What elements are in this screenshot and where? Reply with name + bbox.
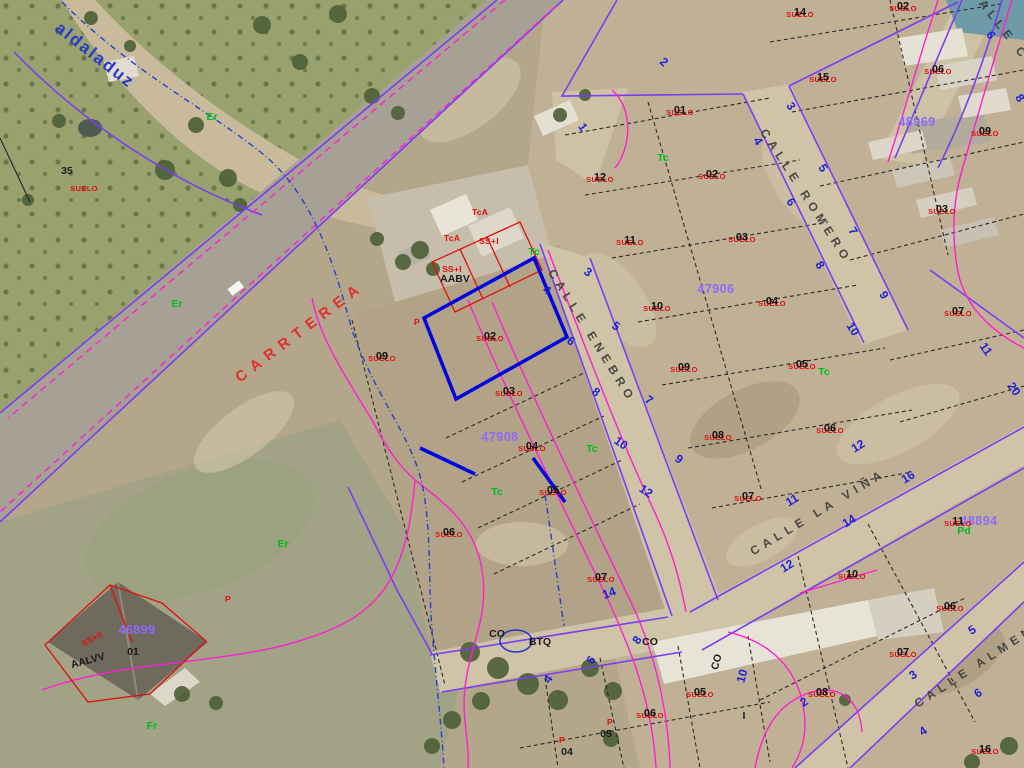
parcel-suelo-label: SUELO16 xyxy=(971,741,999,759)
parcel-suelo-label: SUELO07 xyxy=(889,644,917,662)
parcel-number: 05 xyxy=(694,686,706,698)
parcel-suelo-label: SUELO12 xyxy=(586,169,614,187)
building-annotation: P xyxy=(225,595,231,604)
parcel-number: 10 xyxy=(651,300,663,312)
parcel-suelo-label: SUELO05 xyxy=(539,482,567,500)
parcel-suelo-label: SUELO06 xyxy=(636,705,664,723)
building-annotation: TcA xyxy=(444,234,460,243)
text-annotation: CO xyxy=(642,637,658,648)
parcel-number: 05 xyxy=(547,484,559,496)
parcel-number: 07 xyxy=(897,646,909,658)
land-use-code-label: Tc xyxy=(528,247,539,258)
building-annotation: P xyxy=(607,718,613,727)
parcel-suelo-label: SUELO04 xyxy=(758,293,786,311)
house-number-label: 5 xyxy=(966,623,978,637)
parcel-suelo-label: SUELO06 xyxy=(936,598,964,616)
house-number-label: 8 xyxy=(813,259,827,271)
suelo-text: SUELO xyxy=(70,184,98,193)
parcel-number: 06 xyxy=(644,707,656,719)
parcel-number: 16 xyxy=(979,743,991,755)
house-number-label: 9 xyxy=(877,289,891,301)
block-number-label: 47908 xyxy=(481,431,518,444)
text-annotation: 04 xyxy=(561,747,573,758)
parcel-suelo-label: SUELO08 xyxy=(808,684,836,702)
parcel-suelo-label: SUELO11 xyxy=(616,232,644,250)
text-annotation: CO xyxy=(710,653,724,671)
parcel-number: 15 xyxy=(817,71,829,83)
street-name-label: CALLE ROMERO xyxy=(758,127,854,265)
text-annotation: CO xyxy=(489,629,505,640)
parcel-number: 04 xyxy=(766,295,778,307)
house-number-label: 20 xyxy=(1005,380,1022,398)
building-annotation: P xyxy=(414,318,420,327)
map-canvas[interactable]: CARRTEREACALLE ENEBROCALLE ROMEROCALLE L… xyxy=(0,0,1024,768)
street-name-label: CALLE LA VIÑA xyxy=(748,467,888,558)
text-annotation: BTQ xyxy=(529,637,551,648)
parcel-number: 06 xyxy=(824,422,836,434)
parcel-suelo-label: SUELO02 xyxy=(476,328,504,346)
parcel-number: 09 xyxy=(979,125,991,137)
parcel-suelo-label: SUELO03 xyxy=(495,383,523,401)
parcel-suelo-label: SUELO08 xyxy=(704,427,732,445)
house-number-label: 4 xyxy=(541,283,553,297)
street-name-label: aldaladuz xyxy=(52,19,138,91)
parcel-suelo-label: SUELO07 xyxy=(587,569,615,587)
parcel-suelo-label: SUELO03 xyxy=(928,201,956,219)
parcel-suelo-label: SUELO06 xyxy=(816,420,844,438)
house-number-label: 16 xyxy=(899,468,917,485)
street-name-label: CALLE ALMENDRO xyxy=(912,600,1024,709)
parcel-number: 05 xyxy=(796,358,808,370)
parcel-number: 07 xyxy=(742,490,754,502)
house-number-label: 6 xyxy=(565,334,577,348)
house-number-label: 14 xyxy=(601,585,618,601)
parcel-suelo-label: SUELO10 xyxy=(643,298,671,316)
house-number-label: 5 xyxy=(610,319,622,333)
house-number-label: 3 xyxy=(582,265,594,279)
parcel-suelo-label: SUELO05 xyxy=(788,356,816,374)
text-annotation: I xyxy=(743,711,746,722)
house-number-label: 2 xyxy=(658,55,671,68)
parcel-suelo-label: SUELO02 xyxy=(889,0,917,16)
land-use-code-label: Tc xyxy=(586,444,597,455)
parcel-suelo-label: SUELO04 xyxy=(518,438,546,456)
parcel-suelo-label: SUELO09 xyxy=(670,359,698,377)
house-number-label: 8 xyxy=(1013,92,1024,104)
parcel-number: 07 xyxy=(595,571,607,583)
parcel-number: 03 xyxy=(936,203,948,215)
parcel-suelo-label: SUELO11 xyxy=(944,513,972,531)
parcel-suelo-label: SUELO05 xyxy=(686,684,714,702)
parcel-suelo-label: SUELO09 xyxy=(368,348,396,366)
parcel-suelo-label: SUELO15 xyxy=(809,69,837,87)
text-annotation: AABV xyxy=(440,274,470,285)
parcel-number: 08 xyxy=(816,686,828,698)
land-use-code-label: Tc xyxy=(657,153,668,164)
parcel-number: 06 xyxy=(944,600,956,612)
parcel-number: 07 xyxy=(952,305,964,317)
parcel-suelo-label: SUELO14 xyxy=(786,4,814,22)
parcel-number: 03 xyxy=(503,385,515,397)
parcel-number: 04 xyxy=(526,440,538,452)
parcel-suelo-label: SUELO xyxy=(70,178,98,196)
land-use-code-label: Tc xyxy=(818,367,829,378)
house-number-label: 3 xyxy=(907,668,919,682)
house-number-label: 6 xyxy=(972,686,984,700)
land-use-code-label: Er xyxy=(171,299,182,310)
land-use-code-label: Er xyxy=(206,112,217,123)
house-number-label: 7 xyxy=(643,393,655,407)
parcel-number: 02 xyxy=(484,330,496,342)
parcel-number: 11 xyxy=(952,515,964,527)
parcel-suelo-label: SUELO06 xyxy=(924,61,952,79)
parcel-number: 02 xyxy=(897,0,909,12)
land-use-code-label: Er xyxy=(277,539,288,550)
block-number-label: 47906 xyxy=(697,283,734,296)
parcel-number: 06 xyxy=(443,526,455,538)
parcel-suelo-label: SUELO01 xyxy=(666,102,694,120)
parcel-number: 08 xyxy=(712,429,724,441)
labels-layer: CARRTEREACALLE ENEBROCALLE ROMEROCALLE L… xyxy=(0,0,1024,768)
text-annotation: 01 xyxy=(127,647,139,658)
parcel-suelo-label: SUELO06 xyxy=(435,524,463,542)
block-number-label: 48969 xyxy=(898,116,935,129)
parcel-number: 01 xyxy=(674,104,686,116)
house-number-label: 14 xyxy=(840,512,858,529)
block-number-label: 46899 xyxy=(118,624,155,637)
house-number-label: 3 xyxy=(784,100,798,112)
house-number-label: 5 xyxy=(816,162,830,174)
house-number-label: 7 xyxy=(846,225,860,237)
house-number-label: 4 xyxy=(917,724,929,738)
parcel-number: 14 xyxy=(794,6,806,18)
parcel-number: 06 xyxy=(932,63,944,75)
parcel-number: 10 xyxy=(846,568,858,580)
house-number-label: 12 xyxy=(849,437,867,454)
house-number-label: 9 xyxy=(673,452,685,466)
house-number-label: 1 xyxy=(576,121,590,133)
house-number-label: 10 xyxy=(844,320,861,338)
text-annotation: 35 xyxy=(61,166,73,177)
land-use-code-label: Fr xyxy=(147,721,158,732)
text-annotation: 05 xyxy=(600,729,612,740)
house-number-label: 12 xyxy=(637,482,655,499)
parcel-suelo-label: SUELO07 xyxy=(734,488,762,506)
building-annotation: SS+II xyxy=(80,630,104,648)
parcel-number: 11 xyxy=(624,234,636,246)
parcel-suelo-label: SUELO09 xyxy=(971,123,999,141)
parcel-suelo-label: SUELO02 xyxy=(698,166,726,184)
house-number-label: 12 xyxy=(778,557,796,574)
house-number-label: 4 xyxy=(541,673,555,685)
house-number-label: 8 xyxy=(590,385,602,399)
street-name-label: CARRTEREA xyxy=(233,279,368,386)
building-annotation: P xyxy=(559,736,565,745)
building-annotation: TcA xyxy=(472,208,488,217)
parcel-suelo-label: SUELO03 xyxy=(728,229,756,247)
house-number-label: 4 xyxy=(751,135,765,147)
house-number-label: 11 xyxy=(977,340,994,357)
house-number-label: 6 xyxy=(584,654,598,666)
parcel-number: 02 xyxy=(706,168,718,180)
parcel-suelo-label: SUELO07 xyxy=(944,303,972,321)
street-name-label: CALLE CA xyxy=(968,0,1024,73)
house-number-label: 6 xyxy=(984,29,998,41)
building-annotation: SS+I xyxy=(479,237,499,246)
house-number-label: 6 xyxy=(784,196,798,208)
house-number-label: 11 xyxy=(783,492,800,509)
house-number-label: 10 xyxy=(612,434,630,451)
parcel-number: 12 xyxy=(594,171,606,183)
house-number-label: 10 xyxy=(734,668,749,684)
street-name-label: CALLE ENEBRO xyxy=(546,267,638,405)
parcel-suelo-label: SUELO10 xyxy=(838,566,866,584)
text-annotation: AALVV xyxy=(70,651,106,670)
parcel-number: 03 xyxy=(736,231,748,243)
parcel-number: 09 xyxy=(678,361,690,373)
parcel-number: 09 xyxy=(376,350,388,362)
land-use-code-label: Tc xyxy=(491,487,502,498)
